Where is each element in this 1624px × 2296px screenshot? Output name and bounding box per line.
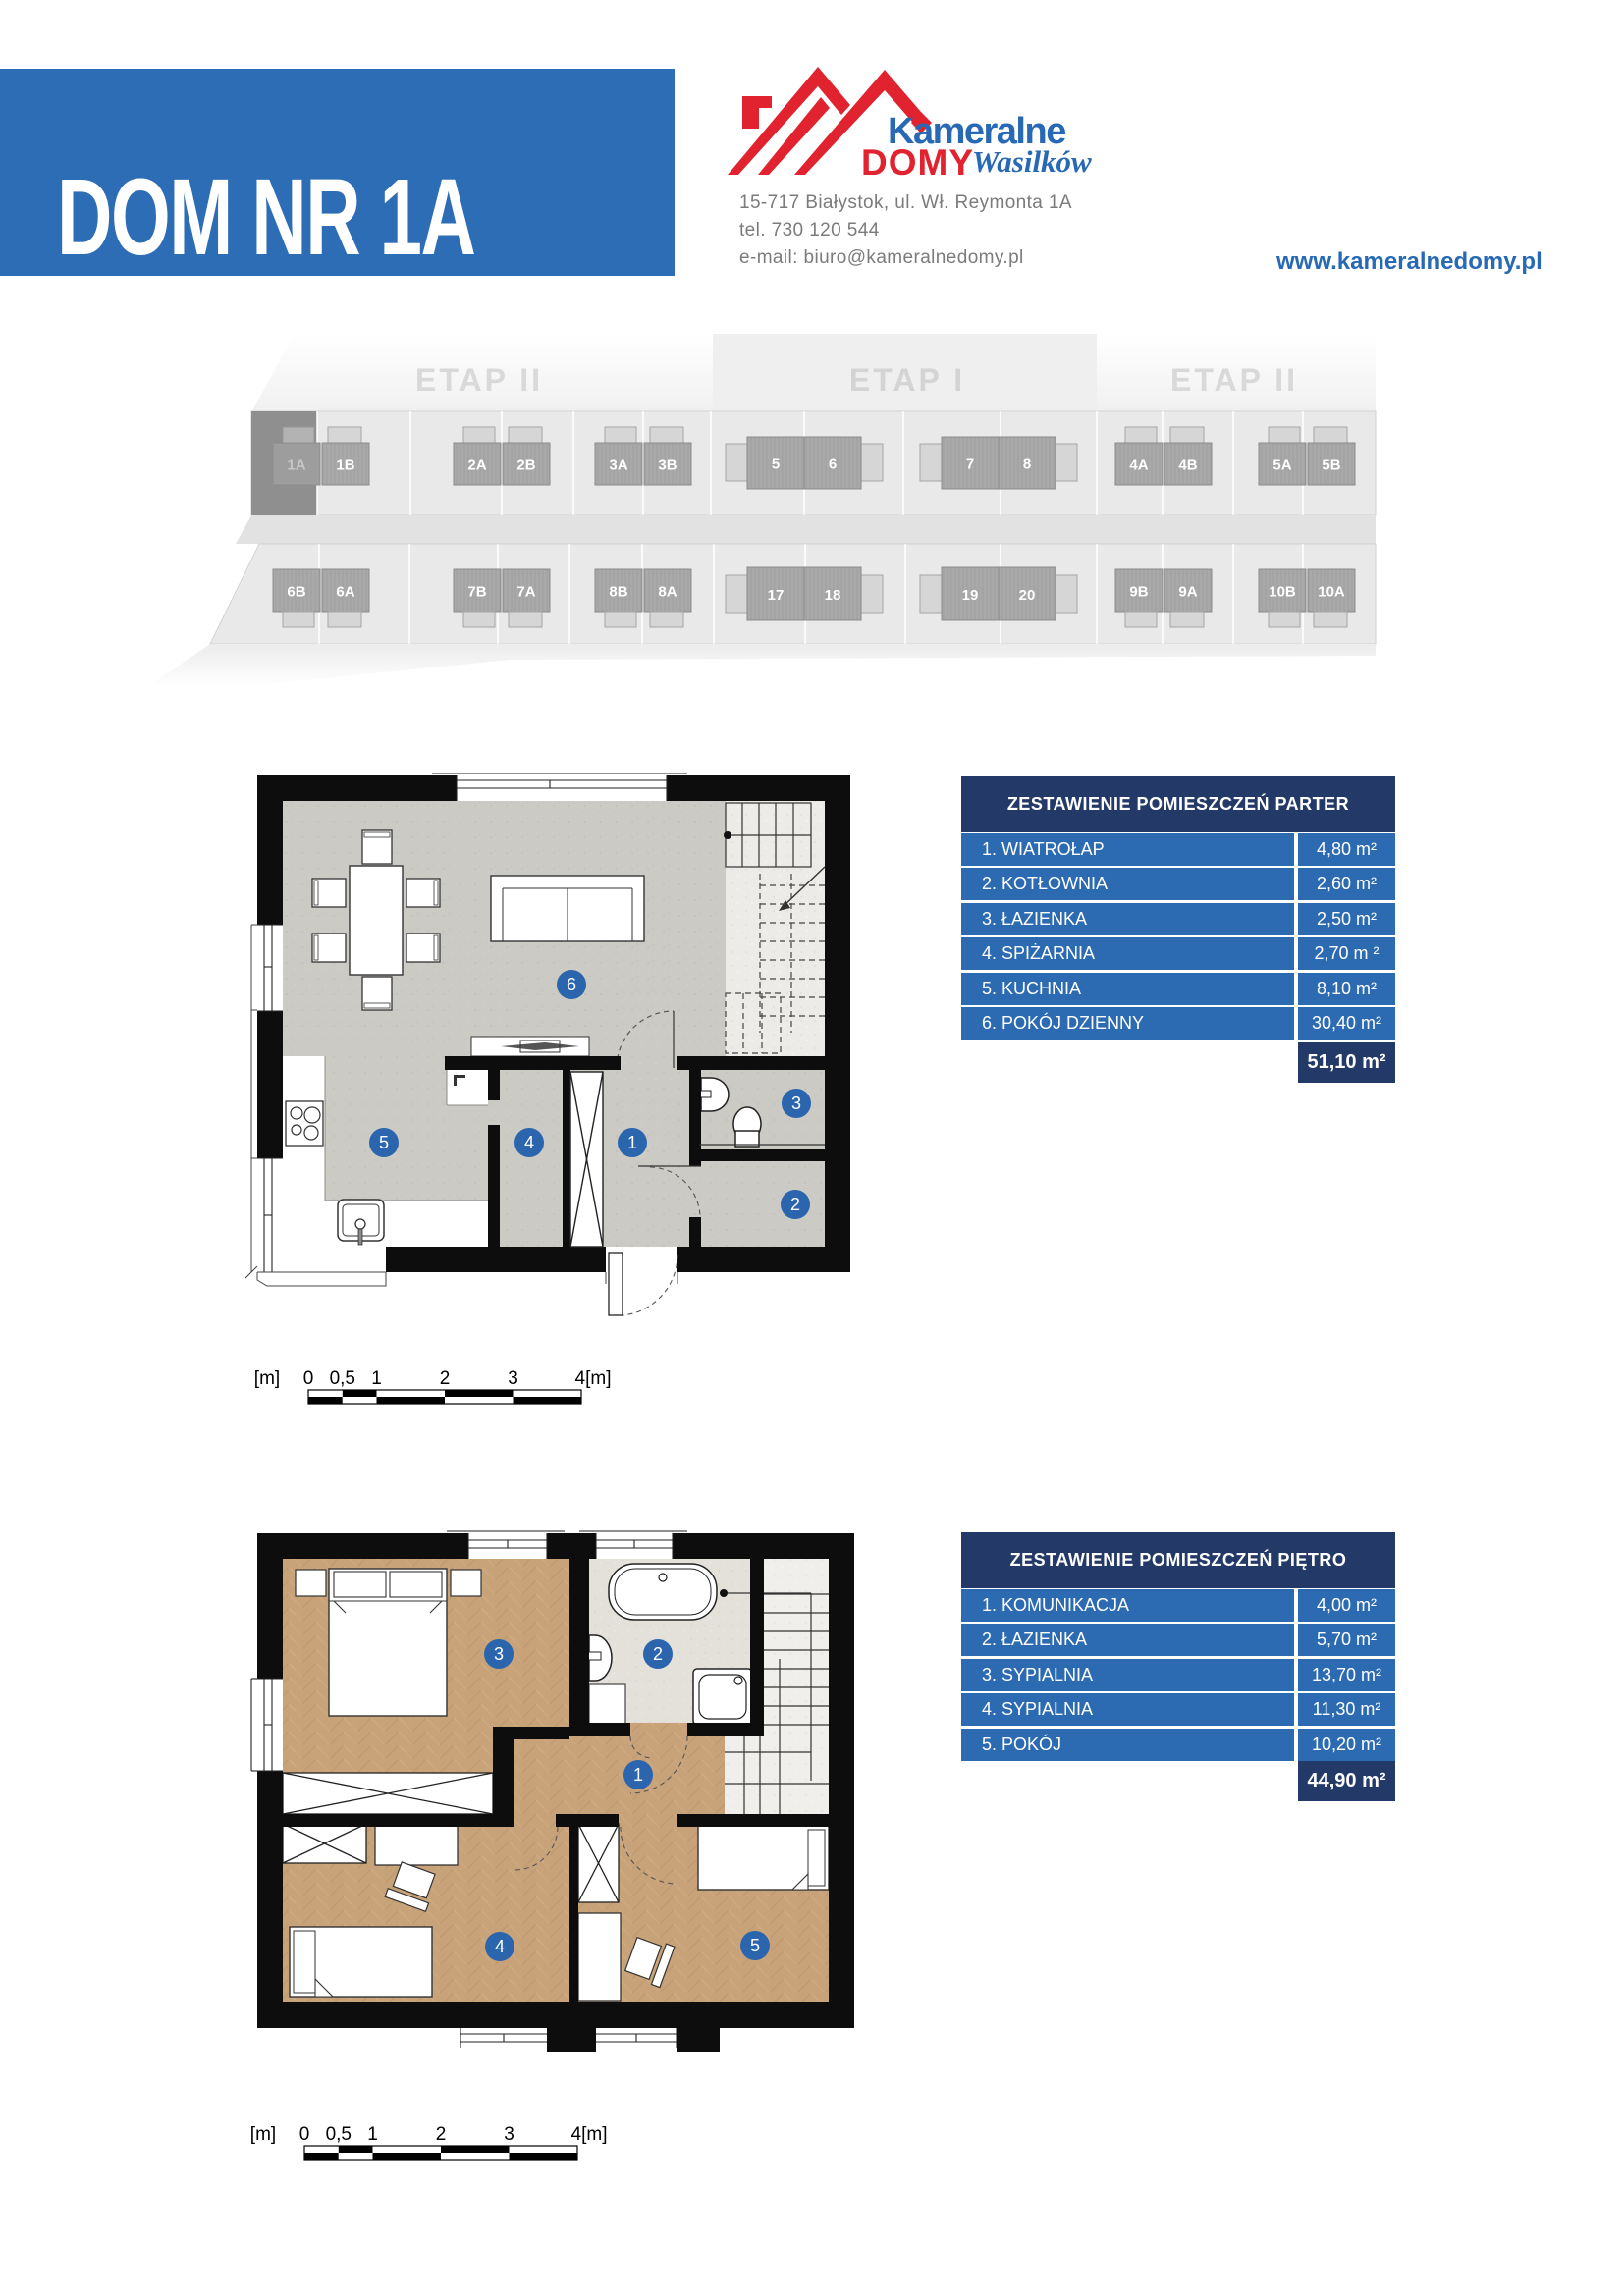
svg-text:DOMY: DOMY [861,142,974,183]
svg-text:2: 2 [440,1368,451,1389]
svg-text:Wasilków: Wasilków [972,144,1092,179]
svg-text:5: 5 [750,1936,760,1955]
svg-text:3: 3 [508,1368,518,1389]
svg-text:8A: 8A [658,584,677,601]
svg-text:2: 2 [653,1644,663,1664]
svg-text:6B: 6B [287,584,305,601]
svg-text:0: 0 [303,1368,314,1389]
svg-text:10B: 10B [1269,584,1296,601]
svg-text:5: 5 [772,456,780,473]
svg-text:2: 2 [790,1195,800,1214]
svg-text:ETAP II: ETAP II [415,362,543,398]
svg-text:1: 1 [371,1368,382,1389]
svg-text:3: 3 [791,1094,801,1113]
svg-text:1: 1 [627,1133,637,1152]
svg-text:6: 6 [829,456,837,473]
svg-text:1A: 1A [287,457,305,474]
svg-text:3B: 3B [658,457,677,474]
svg-text:8B: 8B [609,584,627,601]
svg-text:ETAP II: ETAP II [1170,362,1298,398]
svg-text:20: 20 [1019,587,1036,604]
svg-text:18: 18 [825,587,841,604]
svg-text:1: 1 [633,1765,643,1785]
svg-text:19: 19 [962,587,979,604]
svg-text:4A: 4A [1129,457,1148,474]
svg-text:5B: 5B [1322,457,1340,474]
svg-text:6: 6 [567,975,576,994]
svg-text:5: 5 [379,1133,389,1152]
svg-text:ETAP I: ETAP I [849,362,965,398]
svg-text:2A: 2A [467,457,486,474]
svg-text:0: 0 [299,2124,310,2145]
svg-text:1B: 1B [336,457,354,474]
svg-text:2: 2 [436,2124,447,2145]
svg-text:7: 7 [966,456,974,473]
svg-text:10A: 10A [1318,584,1345,601]
svg-text:17: 17 [768,587,785,604]
svg-text:4B: 4B [1178,457,1197,474]
svg-text:3: 3 [504,2124,514,2145]
svg-text:4[m]: 4[m] [571,2124,608,2145]
svg-text:7B: 7B [467,584,486,601]
svg-text:2B: 2B [516,457,535,474]
svg-text:5A: 5A [1272,457,1291,474]
svg-text:1: 1 [367,2124,378,2145]
svg-text:9B: 9B [1129,584,1148,601]
svg-text:4[m]: 4[m] [575,1368,612,1389]
svg-text:8: 8 [1023,456,1031,473]
svg-text:7A: 7A [516,584,535,601]
svg-text:[m]: [m] [250,2124,276,2145]
svg-text:0,5: 0,5 [330,1368,355,1389]
svg-text:3: 3 [494,1644,504,1664]
svg-text:0,5: 0,5 [326,2124,352,2145]
svg-text:4: 4 [524,1133,534,1152]
svg-text:9A: 9A [1178,584,1197,601]
svg-text:4: 4 [495,1937,505,1956]
svg-text:6A: 6A [336,584,354,601]
svg-text:3A: 3A [609,457,627,474]
svg-text:[m]: [m] [254,1368,280,1389]
